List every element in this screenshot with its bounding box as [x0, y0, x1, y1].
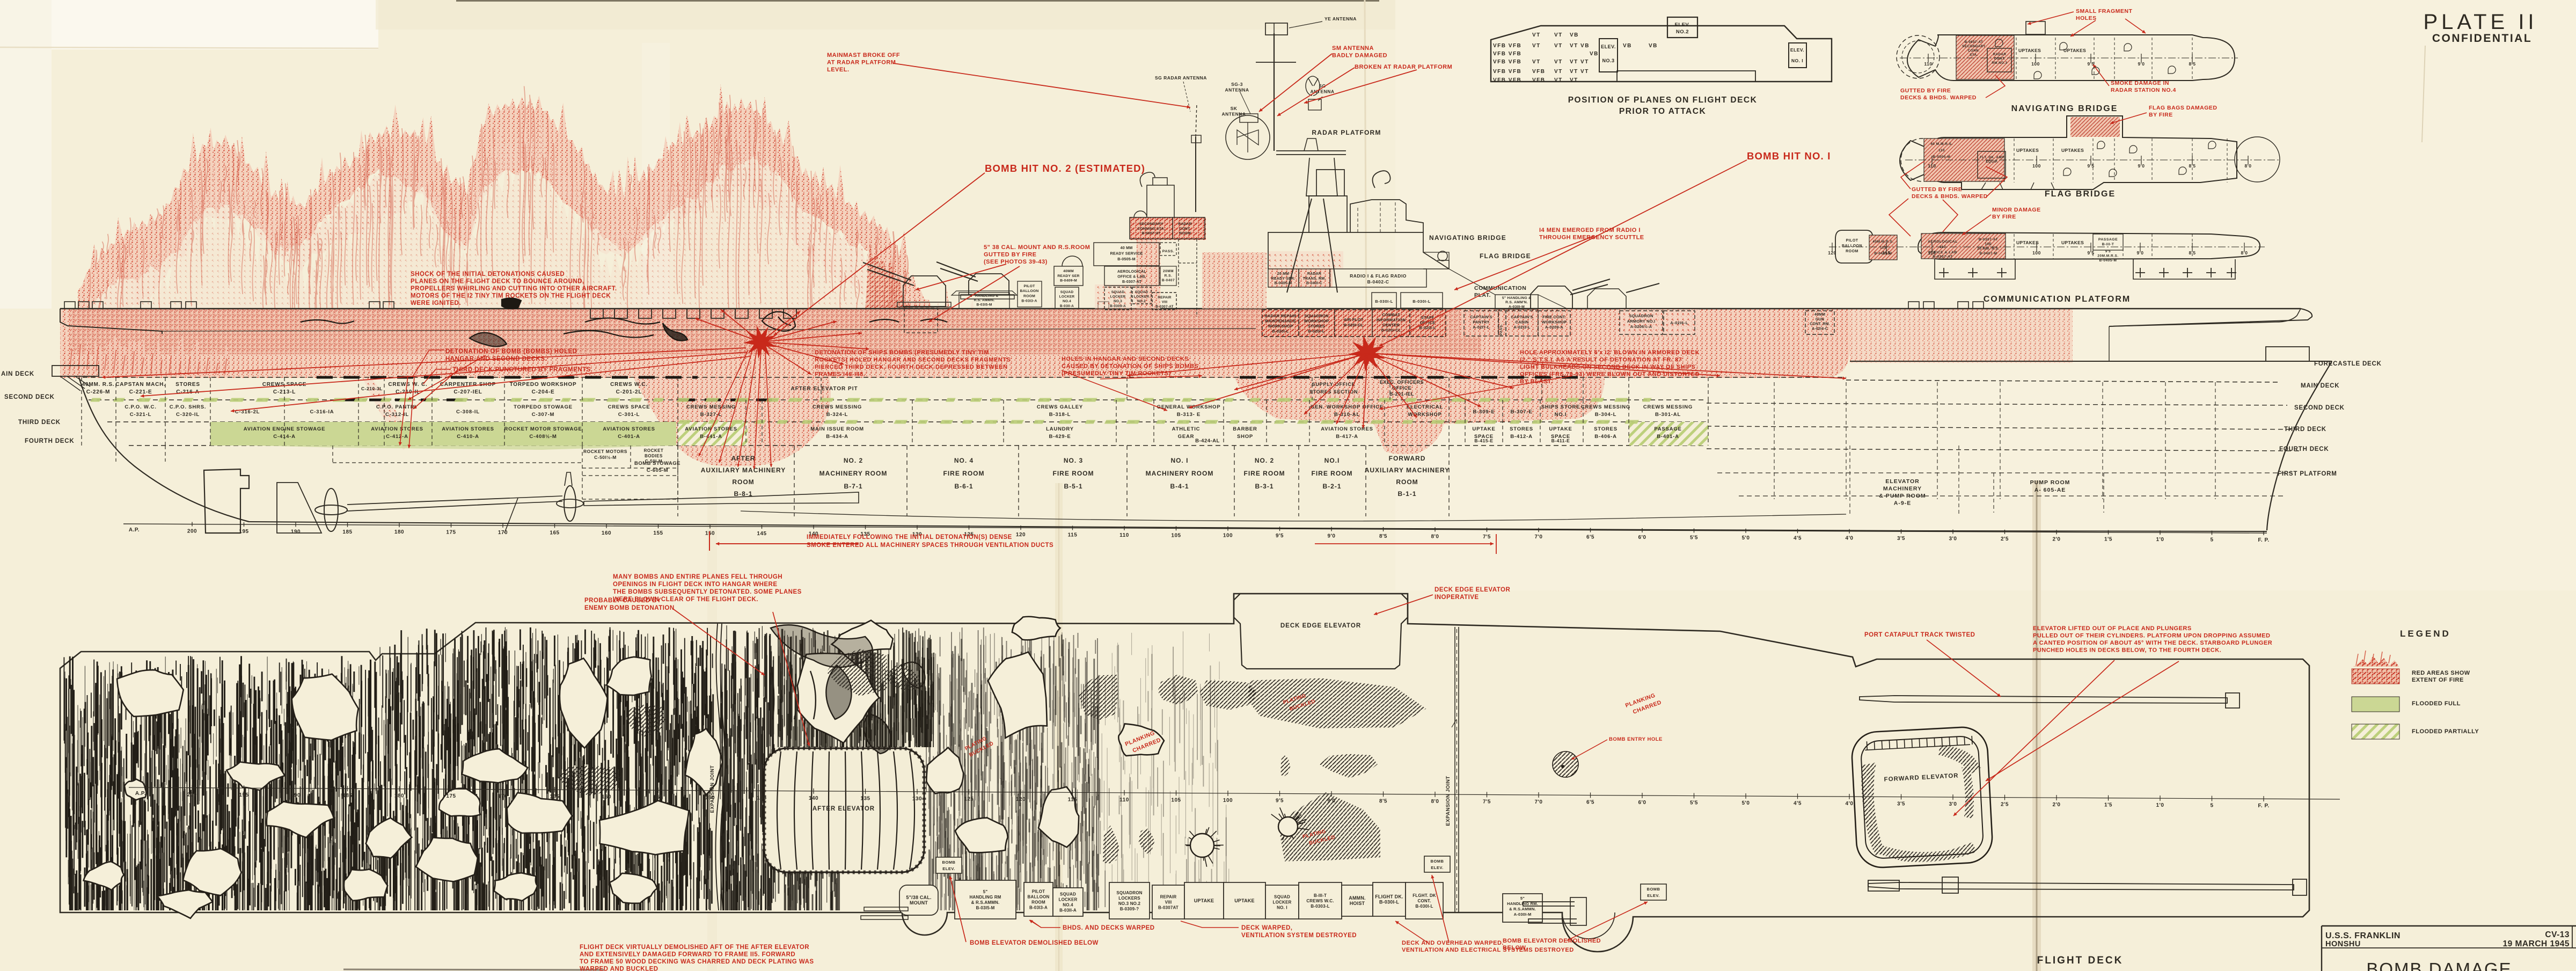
svg-text:120: 120	[1016, 532, 1026, 538]
svg-text:UPTAKES: UPTAKES	[2061, 240, 2084, 245]
svg-text:8'0: 8'0	[2241, 250, 2248, 255]
svg-text:8'0: 8'0	[2245, 163, 2252, 169]
svg-text:VT: VT	[1554, 69, 1563, 75]
svg-text:4'5: 4'5	[1794, 535, 1802, 541]
svg-text:& R.S.AMMN.: & R.S.AMMN.	[971, 900, 1000, 905]
svg-text:STAFFOFFICEB-020I-L: STAFFOFFICEB-020I-L	[1419, 315, 1436, 330]
svg-text:U.S.S. FRANKLIN: U.S.S. FRANKLIN	[2325, 931, 2401, 940]
svg-text:NO.I: NO.I	[1555, 412, 1567, 418]
svg-text:BOMB HIT NO. 2 (ESTIMATED): BOMB HIT NO. 2 (ESTIMATED)	[985, 163, 1145, 174]
svg-text:AFTER ELEVATOR: AFTER ELEVATOR	[813, 806, 875, 812]
svg-text:TORPEDO WORKSHOP: TORPEDO WORKSHOP	[510, 382, 577, 388]
svg-text:FLOODED FULL: FLOODED FULL	[2412, 700, 2461, 707]
svg-text:C-213-L: C-213-L	[273, 389, 296, 395]
svg-text:CREWS W.C.: CREWS W.C.	[610, 382, 648, 388]
svg-text:B-030I-L: B-030I-L	[1375, 299, 1393, 304]
svg-text:C-321-L: C-321-L	[130, 412, 151, 418]
svg-text:100: 100	[2032, 163, 2041, 169]
svg-text:C-221-E: C-221-E	[129, 389, 152, 395]
svg-text:AMMN.: AMMN.	[1349, 895, 1366, 901]
svg-text:NAVIGATING BRIDGE: NAVIGATING BRIDGE	[1429, 234, 1506, 242]
svg-text:CREWS MESSING: CREWS MESSING	[1581, 404, 1630, 410]
svg-text:EXPANSION JOINT: EXPANSION JOINT	[1445, 776, 1451, 826]
svg-text:CAPTAIN'SPANTRYA-02I7-L: CAPTAIN'SPANTRYA-02I7-L	[1470, 315, 1492, 330]
svg-text:110: 110	[1119, 532, 1129, 538]
svg-text:CREWS GALLEY: CREWS GALLEY	[1037, 404, 1083, 410]
svg-text:AVIATION STORES: AVIATION STORES	[1321, 426, 1373, 432]
svg-text:135: 135	[860, 795, 870, 801]
svg-text:190: 190	[291, 529, 301, 535]
svg-text:CV-13: CV-13	[2545, 930, 2570, 939]
svg-text:LOCKERS: LOCKERS	[1118, 896, 1140, 901]
svg-text:PASSAGE: PASSAGE	[1654, 426, 1681, 432]
svg-text:STORES: STORES	[1594, 426, 1618, 432]
svg-text:VT VB: VT VB	[1570, 43, 1590, 49]
svg-text:8'5: 8'5	[1379, 534, 1387, 539]
svg-text:AFTER ELEVATOR PIT: AFTER ELEVATOR PIT	[791, 386, 858, 392]
svg-text:185: 185	[342, 793, 352, 799]
svg-text:VFB VFB: VFB VFB	[1493, 77, 1521, 83]
svg-text:B-318-L: B-318-L	[1049, 412, 1071, 418]
svg-text:6'0: 6'0	[1638, 800, 1646, 806]
svg-text:FLAG BRIDGE: FLAG BRIDGE	[2045, 189, 2116, 199]
svg-text:9'0: 9'0	[1327, 798, 1335, 804]
svg-text:UPTAKES: UPTAKES	[2061, 148, 2084, 153]
svg-text:B-309-E: B-309-E	[1473, 409, 1495, 415]
svg-text:145: 145	[757, 795, 766, 801]
svg-text:165: 165	[550, 530, 559, 536]
svg-text:GEN. WORKSHOP OFFICE: GEN. WORKSHOP OFFICE	[1311, 404, 1384, 410]
svg-text:NAVIGATING BRIDGE: NAVIGATING BRIDGE	[2011, 104, 2118, 113]
svg-text:GENERAL WORKSHOP: GENERAL WORKSHOP	[1157, 404, 1221, 410]
svg-text:170: 170	[498, 794, 508, 800]
svg-text:B-411-E: B-411-E	[1552, 438, 1570, 443]
svg-text:7'0: 7'0	[1534, 534, 1542, 540]
svg-text:2'0: 2'0	[2052, 536, 2060, 542]
svg-text:A-02I6-L: A-02I6-L	[1670, 320, 1688, 325]
svg-text:VFB VFB: VFB VFB	[1493, 69, 1521, 75]
svg-text:5: 5	[2210, 803, 2213, 809]
svg-text:UPTAKE: UPTAKE	[1194, 898, 1214, 903]
svg-text:F. P.: F. P.	[2258, 537, 2269, 543]
svg-text:HANDLING RM: HANDLING RM	[969, 895, 1001, 900]
svg-text:UPTAKES: UPTAKES	[2063, 48, 2086, 53]
svg-text:VT: VT	[1554, 59, 1563, 65]
svg-text:AVIATION ENGINE STOWAGE: AVIATION ENGINE STOWAGE	[244, 426, 325, 432]
svg-text:VT: VT	[1532, 59, 1541, 65]
svg-text:B-401-A: B-401-A	[1657, 434, 1679, 440]
svg-text:8'0: 8'0	[1431, 534, 1439, 539]
svg-text:140: 140	[809, 795, 818, 801]
svg-text:THIRD DECK: THIRD DECK	[2284, 426, 2326, 433]
svg-text:5"/38 CAL.: 5"/38 CAL.	[906, 895, 931, 900]
svg-text:VFB VFB: VFB VFB	[1493, 59, 1521, 65]
svg-text:C-408½-M: C-408½-M	[529, 434, 557, 440]
svg-text:150: 150	[705, 795, 715, 801]
svg-text:ELEV.: ELEV.	[1647, 893, 1659, 898]
svg-text:175: 175	[446, 793, 456, 799]
svg-text:ELEV.: ELEV.	[1431, 865, 1443, 870]
svg-text:195: 195	[239, 792, 248, 798]
svg-text:RED AREAS SHOWEXTENT OF FIRE: RED AREAS SHOWEXTENT OF FIRE	[2412, 670, 2470, 683]
svg-text:C.P.O. W.C.: C.P.O. W.C.	[125, 404, 156, 410]
svg-text:PRIOR TO ATTACK: PRIOR TO ATTACK	[1619, 107, 1706, 116]
svg-text:FIRST PLATFORM: FIRST PLATFORM	[2278, 471, 2337, 477]
svg-text:VT VT: VT VT	[1570, 69, 1589, 75]
svg-text:100: 100	[1223, 798, 1233, 804]
svg-text:RADAR PLATFORM: RADAR PLATFORM	[1312, 129, 1381, 136]
svg-text:170: 170	[498, 530, 508, 536]
svg-text:B-441-A: B-441-A	[700, 434, 722, 440]
svg-text:6'5: 6'5	[1586, 535, 1594, 541]
svg-text:UPTAKE: UPTAKE	[1234, 898, 1255, 903]
svg-text:AIR PLOTB-020I-CL: AIR PLOTB-020I-CL	[1344, 317, 1364, 327]
svg-text:B-313- E: B-313- E	[1177, 412, 1201, 418]
svg-text:FLIGHT DECK: FLIGHT DECK	[2037, 955, 2124, 966]
svg-text:AVIATION STORES: AVIATION STORES	[442, 426, 494, 432]
svg-text:MAIN DECK: MAIN DECK	[2301, 383, 2339, 389]
svg-text:100: 100	[2032, 250, 2041, 255]
svg-text:2'5: 2'5	[2001, 536, 2009, 542]
svg-text:PORT CATAPULT TRACK TWISTED: PORT CATAPULT TRACK TWISTED	[1864, 632, 1975, 638]
svg-text:1'0: 1'0	[2156, 802, 2164, 808]
svg-text:165: 165	[550, 794, 559, 800]
svg-text:160: 160	[602, 530, 611, 536]
svg-text:FLOODED PARTIALLY: FLOODED PARTIALLY	[2412, 728, 2479, 735]
svg-text:120: 120	[1016, 797, 1026, 802]
svg-text:CARPENTER SHOP: CARPENTER SHOP	[440, 382, 496, 388]
svg-text:SMOKE DAMAGE INRADAR STATION N: SMOKE DAMAGE INRADAR STATION NO.4	[2111, 80, 2176, 93]
svg-text:B-03I3-A: B-03I3-A	[1029, 906, 1048, 910]
svg-text:CREWS MESSING: CREWS MESSING	[686, 404, 736, 410]
svg-text:VB: VB	[1623, 43, 1632, 49]
svg-text:A.P.: A.P.	[129, 527, 140, 533]
svg-text:PLATE II: PLATE II	[2423, 10, 2537, 34]
svg-text:NO. I: NO. I	[1277, 906, 1287, 910]
svg-text:BOMB HIT NO. I: BOMB HIT NO. I	[1747, 150, 1831, 162]
svg-text:CONFIDENTIAL: CONFIDENTIAL	[2432, 32, 2532, 45]
svg-text:VT: VT	[1554, 32, 1563, 38]
svg-text:B-0307AT: B-0307AT	[1158, 906, 1179, 910]
svg-text:BARBER: BARBER	[1233, 426, 1257, 432]
svg-text:100: 100	[2031, 61, 2040, 67]
svg-text:BOMB ELEVATOR DEMOLISHED BELOW: BOMB ELEVATOR DEMOLISHED BELOW	[970, 940, 1099, 946]
svg-text:40MM. R.S.: 40MM. R.S.	[82, 382, 115, 388]
svg-text:A.P.: A.P.	[135, 791, 146, 797]
svg-text:CREWS W. C.: CREWS W. C.	[388, 382, 427, 388]
svg-text:B-424-AL: B-424-AL	[1195, 438, 1220, 444]
svg-text:130: 130	[912, 796, 922, 802]
svg-text:7'5: 7'5	[1483, 799, 1491, 805]
svg-text:155: 155	[653, 794, 663, 800]
svg-text:STORES: STORES	[175, 382, 200, 388]
svg-text:SQUADRONARMORY NO.IA-0206½-A: SQUADRONARMORY NO.IA-0206½-A	[1627, 313, 1656, 329]
svg-text:185: 185	[342, 529, 352, 535]
svg-text:VT: VT	[1554, 43, 1563, 49]
svg-text:B-324-L: B-324-L	[826, 412, 848, 418]
svg-text:7'0: 7'0	[1534, 799, 1542, 805]
svg-text:C-401-A: C-401-A	[618, 434, 640, 440]
svg-text:FORECASTLE DECK: FORECASTLE DECK	[2314, 361, 2382, 367]
svg-text:3'0: 3'0	[1949, 801, 1957, 807]
svg-text:VT: VT	[1532, 43, 1541, 49]
svg-text:B-0307-AT: B-0307-AT	[1933, 255, 1953, 259]
svg-text:5'0: 5'0	[1741, 800, 1750, 806]
svg-text:120: 120	[1828, 250, 1836, 255]
svg-text:B-417-A: B-417-A	[1336, 434, 1358, 440]
svg-text:ROCKET MOTOR STOWAGE: ROCKET MOTOR STOWAGE	[504, 426, 582, 432]
svg-text:UPTAKE: UPTAKE	[1549, 426, 1572, 432]
svg-text:ROOM: ROOM	[1031, 900, 1045, 905]
svg-text:C-307-M: C-307-M	[532, 412, 555, 418]
svg-text:9'0: 9'0	[2138, 163, 2145, 169]
svg-text:STORES: STORES	[1510, 426, 1533, 432]
svg-text:5'5: 5'5	[1690, 800, 1698, 806]
svg-text:C-201-2L: C-201-2L	[616, 389, 642, 395]
svg-text:19 MARCH 1945: 19 MARCH 1945	[2502, 939, 2570, 948]
svg-text:FOURTH DECK: FOURTH DECK	[2279, 446, 2329, 452]
svg-text:4'0: 4'0	[1845, 801, 1853, 807]
svg-text:ELEV.: ELEV.	[942, 866, 955, 871]
svg-text:105: 105	[1171, 797, 1181, 803]
svg-text:C-207-IEL: C-207-IEL	[453, 389, 482, 395]
svg-text:B-030I-L: B-030I-L	[1413, 299, 1431, 304]
svg-text:POSITION OF PLANES ON FLIGHT D: POSITION OF PLANES ON FLIGHT DECK	[1568, 96, 1758, 105]
svg-text:VIII: VIII	[1165, 900, 1172, 905]
svg-text:VT: VT	[1532, 32, 1541, 38]
svg-text:4'0: 4'0	[1845, 536, 1853, 542]
svg-text:VB: VB	[1570, 32, 1579, 38]
svg-text:190: 190	[291, 793, 301, 799]
svg-text:PILOT: PILOT	[1032, 889, 1045, 894]
svg-text:SQUAD: SQUAD	[1060, 892, 1076, 897]
svg-text:VFB VFB: VFB VFB	[1493, 51, 1521, 57]
svg-text:9'0: 9'0	[2137, 250, 2144, 255]
svg-text:9'0: 9'0	[1327, 534, 1335, 539]
svg-text:AIN DECK: AIN DECK	[1, 371, 34, 377]
svg-text:VFB: VFB	[1532, 69, 1546, 75]
svg-text:105: 105	[1171, 532, 1181, 538]
svg-text:C-412-A: C-412-A	[386, 434, 408, 440]
svg-text:6'5: 6'5	[1586, 800, 1594, 806]
svg-text:3'5: 3'5	[1897, 536, 1905, 542]
svg-text:B-0307-AT10E20 MM. R.S.B-0407-: B-0307-AT10E20 MM. R.S.B-0407-M	[1977, 238, 2000, 255]
svg-text:110: 110	[1928, 163, 1936, 169]
svg-text:B-310-AL: B-310-AL	[1334, 412, 1360, 418]
svg-text:C.P.O. SHRS.: C.P.O. SHRS.	[170, 404, 207, 410]
svg-text:& R.S.AMMN.: & R.S.AMMN.	[1509, 907, 1536, 911]
svg-text:VFB VFB: VFB VFB	[1493, 43, 1521, 49]
svg-text:8'5: 8'5	[1379, 798, 1387, 804]
svg-text:VT: VT	[1570, 77, 1578, 83]
svg-text:CONT.: CONT.	[1418, 899, 1431, 903]
svg-text:SG RADAR ANTENNA: SG RADAR ANTENNA	[1155, 75, 1207, 81]
svg-text:160: 160	[602, 794, 611, 800]
svg-text:6'0: 6'0	[1638, 535, 1646, 541]
svg-text:PASS.: PASS.	[1499, 324, 1503, 335]
svg-text:9'5: 9'5	[2088, 250, 2095, 255]
svg-text:BOMB: BOMB	[942, 860, 956, 865]
svg-text:BOMB: BOMB	[1431, 859, 1444, 864]
svg-text:ELECTRICAL: ELECTRICAL	[1407, 404, 1443, 410]
svg-text:B-304-L: B-304-L	[1595, 412, 1616, 418]
svg-text:C-204-E: C-204-E	[532, 389, 555, 395]
svg-text:115: 115	[1068, 797, 1078, 802]
svg-text:C-210-3L: C-210-3L	[361, 386, 383, 391]
svg-text:C-316-IA: C-316-IA	[310, 409, 334, 415]
svg-text:200: 200	[187, 529, 197, 535]
svg-text:180: 180	[394, 529, 404, 535]
svg-text:B-406-A: B-406-A	[1594, 434, 1617, 440]
svg-text:C-308-IL: C-308-IL	[456, 409, 480, 415]
svg-text:FIRE CONT.WORKSHOPA-0209-A: FIRE CONT.WORKSHOPA-0209-A	[1542, 315, 1567, 330]
svg-text:F. P.: F. P.	[2258, 803, 2269, 809]
svg-text:BHDS. AND DECKS WARPED: BHDS. AND DECKS WARPED	[1063, 925, 1155, 931]
svg-text:3'5: 3'5	[1897, 801, 1905, 807]
svg-text:CREWS MESSING: CREWS MESSING	[813, 404, 862, 410]
svg-text:MOUNT: MOUNT	[910, 900, 928, 906]
svg-text:9'5: 9'5	[1276, 533, 1284, 539]
svg-text:VB: VB	[1590, 51, 1599, 57]
svg-text:UPTAKES: UPTAKES	[2016, 148, 2039, 153]
svg-text:5: 5	[2210, 537, 2213, 543]
svg-text:MAIN ISSUE ROOM: MAIN ISSUE ROOM	[810, 426, 864, 432]
svg-text:SECOND DECK: SECOND DECK	[2294, 405, 2345, 411]
svg-text:B-0303-L: B-0303-L	[1311, 904, 1329, 909]
svg-text:9'0: 9'0	[2138, 61, 2145, 67]
svg-text:2'5: 2'5	[2001, 802, 2009, 808]
svg-text:2'0: 2'0	[2052, 802, 2060, 808]
svg-text:GEAR: GEAR	[1178, 434, 1195, 440]
svg-text:LAUNDRY: LAUNDRY	[1046, 426, 1074, 432]
svg-text:CAPSTAN MACH.: CAPSTAN MACH.	[115, 382, 166, 388]
svg-text:110: 110	[1924, 61, 1932, 67]
svg-text:YE ANTENNA: YE ANTENNA	[1324, 16, 1357, 21]
svg-text:COMMUNICATION PLATFORM: COMMUNICATION PLATFORM	[1984, 295, 2131, 304]
svg-text:155: 155	[653, 530, 663, 536]
svg-text:RADARCONT.ROOM: RADARCONT.ROOM	[1178, 222, 1192, 236]
svg-text:1'5: 1'5	[2104, 802, 2112, 808]
svg-text:UPTAKES: UPTAKES	[2016, 240, 2039, 245]
svg-text:VT VT: VT VT	[1570, 59, 1589, 65]
svg-text:C-414-A: C-414-A	[273, 434, 296, 440]
svg-text:FOURTH DECK: FOURTH DECK	[25, 438, 75, 444]
svg-text:LOCKER: LOCKER	[1059, 897, 1078, 902]
svg-text:FLIGHT DK.: FLIGHT DK.	[1375, 894, 1403, 900]
svg-text:5": 5"	[983, 889, 988, 894]
svg-text:TORPEDO STOWAGE: TORPEDO STOWAGE	[514, 404, 573, 410]
svg-text:VT: VT	[1554, 77, 1563, 83]
svg-text:CREWS SPACE: CREWS SPACE	[608, 404, 650, 410]
svg-text:LOCKER: LOCKER	[1273, 900, 1292, 905]
svg-text:B-412-A: B-412-A	[1510, 434, 1533, 440]
svg-text:C-301-L: C-301-L	[618, 412, 640, 418]
svg-text:B-307-E: B-307-E	[1511, 409, 1533, 415]
svg-text:200: 200	[187, 792, 197, 798]
svg-text:175: 175	[446, 530, 456, 536]
svg-text:AVIATION STORES: AVIATION STORES	[371, 426, 423, 432]
svg-text:NO.4: NO.4	[1063, 903, 1073, 908]
svg-text:FLAG BRIDGE: FLAG BRIDGE	[1480, 252, 1531, 260]
svg-text:B-301-AL: B-301-AL	[1655, 412, 1681, 418]
svg-text:SHOP: SHOP	[1237, 434, 1253, 440]
svg-text:ATHLETIC: ATHLETIC	[1172, 426, 1201, 432]
svg-text:7'5: 7'5	[1483, 534, 1491, 540]
svg-text:B-III-T: B-III-T	[1314, 893, 1327, 898]
svg-text:C-312-IL: C-312-IL	[385, 412, 409, 418]
svg-text:100: 100	[1223, 533, 1233, 539]
svg-text:B-03I5-M: B-03I5-M	[976, 906, 995, 910]
svg-text:SQUAD: SQUAD	[1274, 895, 1290, 900]
svg-text:THIRD DECK: THIRD DECK	[18, 419, 61, 426]
svg-text:B-030I-L: B-030I-L	[1379, 900, 1399, 905]
svg-text:BROKEN AT RADAR PLATFORM: BROKEN AT RADAR PLATFORM	[1355, 64, 1452, 70]
svg-text:HONSHU: HONSHU	[2325, 940, 2361, 948]
svg-text:B-03II-A: B-03II-A	[1059, 908, 1077, 913]
svg-text:C-320-IL: C-320-IL	[176, 412, 200, 418]
svg-text:SQUADRON: SQUADRON	[1116, 890, 1142, 895]
svg-text:FLGHT. DK: FLGHT. DK	[1413, 893, 1436, 898]
svg-text:BOMB: BOMB	[1647, 887, 1660, 892]
svg-text:5'5: 5'5	[1690, 535, 1698, 541]
svg-text:A-030I-M: A-030I-M	[1514, 912, 1532, 917]
svg-text:SHIPS STORE: SHIPS STORE	[1541, 404, 1580, 410]
svg-text:BOMB DAMAGE: BOMB DAMAGE	[2366, 959, 2512, 971]
svg-text:1'5: 1'5	[2104, 537, 2112, 543]
svg-text:REPAIR: REPAIR	[1160, 895, 1177, 900]
svg-text:DECK EDGE ELEVATOR: DECK EDGE ELEVATOR	[1280, 623, 1361, 629]
svg-text:CREWS MESSING: CREWS MESSING	[1643, 404, 1693, 410]
svg-text:B-429-E: B-429-E	[1049, 434, 1071, 440]
svg-text:AVIATION STORES: AVIATION STORES	[603, 426, 655, 432]
svg-text:B-030I-L: B-030I-L	[1415, 904, 1433, 909]
svg-text:UPTAKES: UPTAKES	[2018, 48, 2041, 53]
svg-text:BALLOON: BALLOON	[1028, 895, 1050, 900]
svg-text:125: 125	[964, 796, 974, 802]
svg-text:B-0309-?: B-0309-?	[1120, 907, 1139, 911]
svg-text:C-226-M: C-226-M	[86, 389, 111, 395]
svg-text:SECOND DECK: SECOND DECK	[4, 394, 55, 400]
svg-text:UPTAKE: UPTAKE	[1472, 426, 1495, 432]
svg-text:HOIST: HOIST	[1350, 901, 1365, 906]
svg-text:LEGEND: LEGEND	[2400, 629, 2451, 639]
svg-text:B-434-A: B-434-A	[826, 434, 848, 440]
svg-text:5'0: 5'0	[1741, 535, 1750, 541]
svg-text:BOMB ENTRY HOLE: BOMB ENTRY HOLE	[1609, 736, 1663, 742]
svg-text:CREWS W.C.: CREWS W.C.	[1306, 899, 1334, 903]
svg-text:180: 180	[394, 793, 404, 799]
svg-text:145: 145	[757, 531, 766, 537]
svg-text:1'0: 1'0	[2156, 537, 2164, 543]
svg-text:4'5: 4'5	[1794, 801, 1802, 807]
svg-text:8'0: 8'0	[1431, 799, 1439, 805]
svg-text:110: 110	[1119, 797, 1129, 803]
svg-text:VFB: VFB	[1532, 77, 1546, 83]
svg-text:9'5: 9'5	[1276, 798, 1284, 804]
svg-text:B-415-E: B-415-E	[1474, 438, 1493, 443]
svg-text:C-410-A: C-410-A	[457, 434, 479, 440]
svg-text:RADARCONT.RM.NO.3: RADARCONT.RM.NO.3	[1992, 53, 2007, 65]
svg-text:NO.3 NO.2: NO.3 NO.2	[1118, 901, 1141, 906]
svg-text:9'5: 9'5	[2088, 163, 2095, 169]
svg-text:3'0: 3'0	[1949, 536, 1957, 542]
svg-text:PASS.: PASS.	[1162, 250, 1174, 253]
svg-text:VB: VB	[1649, 43, 1658, 49]
svg-text:115: 115	[1068, 532, 1078, 538]
svg-text:5": 5"	[1520, 896, 1525, 901]
